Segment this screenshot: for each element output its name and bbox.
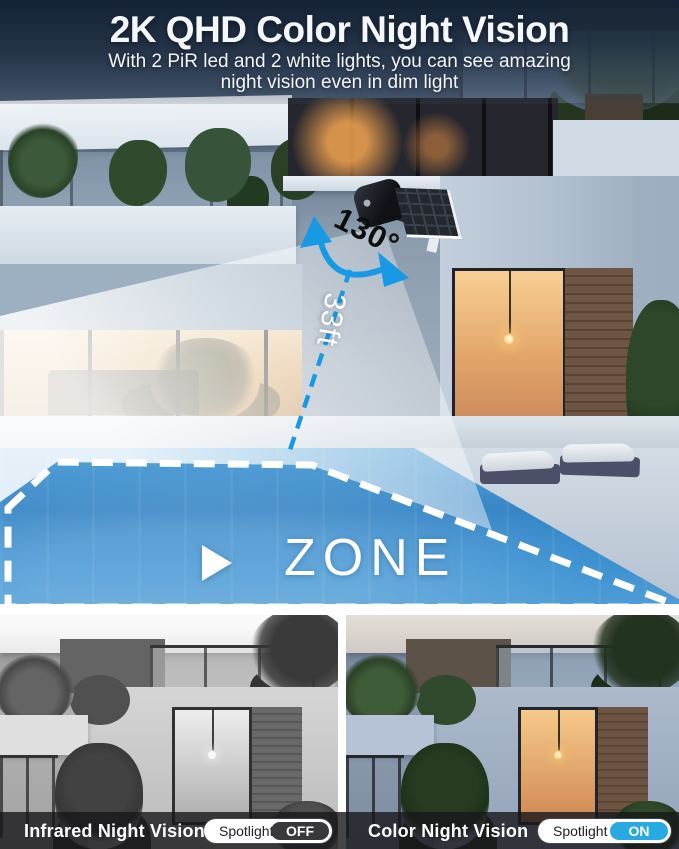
spotlight-toggle-off[interactable]: Spotlight OFF [204, 819, 332, 843]
infrared-night-vision-label: Infrared Night Vision [24, 821, 205, 842]
spotlight-toggle-on[interactable]: Spotlight ON [538, 819, 671, 843]
panel-trees [591, 615, 679, 694]
light-beam-cone-icon [0, 226, 492, 530]
spotlight-label: Spotlight [553, 823, 607, 839]
panel-trees [250, 615, 338, 694]
color-night-vision-label: Color Night Vision [368, 821, 528, 842]
panel-lit-window [172, 707, 252, 825]
spotlight-label: Spotlight [219, 823, 273, 839]
panel-divider [338, 615, 346, 812]
zone-label: ZONE [284, 528, 456, 588]
subtitle-line-1: With 2 PiR led and 2 white lights, you c… [0, 51, 679, 72]
toggle-state-on-badge: ON [610, 822, 668, 840]
header-banner: 2K QHD Color Night Vision With 2 PiR led… [0, 0, 679, 104]
main-product-scene: 130° 33ft ZONE 2K QHD Color Night Vision… [0, 0, 679, 615]
page-title: 2K QHD Color Night Vision [0, 9, 679, 51]
subtitle-line-2: night vision even in dim light [0, 72, 679, 93]
panel-lit-window [518, 707, 598, 825]
play-icon [202, 545, 232, 581]
caption-band: Infrared Night Vision Spotlight OFF Colo… [0, 812, 679, 849]
toggle-state-off-badge: OFF [271, 822, 329, 840]
